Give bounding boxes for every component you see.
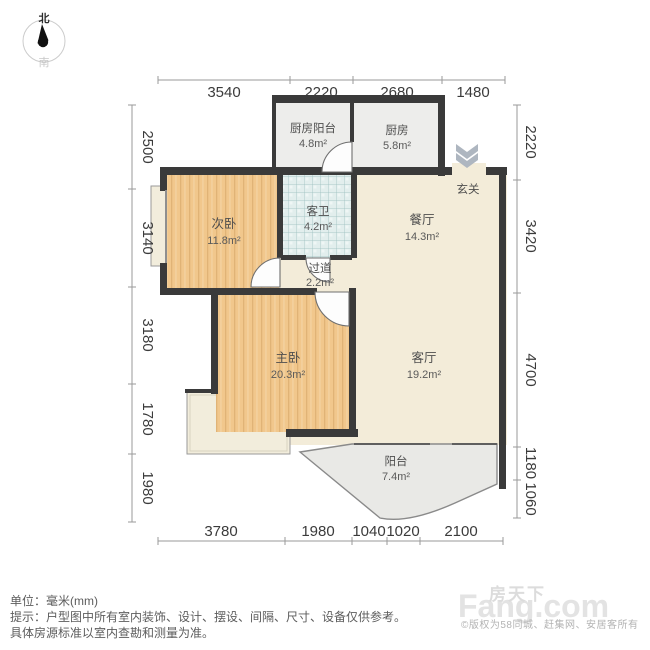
room-area-second-bedroom: 11.8m² [207,235,241,247]
note-tip-line1: 提示：户型图中所有室内装饰、设计、摆设、间隔、尺寸、设备仅供参考。 [10,609,406,625]
room-area-corridor: 2.2m² [306,277,334,289]
kitchen-strip-floor [272,95,444,176]
wall-kitchen-divider [350,95,354,142]
watermark-logo-cn: 房天下 [489,580,546,605]
wall-main-top [160,167,452,175]
wall-master-right [349,288,356,437]
wall-bathroom-left [277,172,283,258]
compass-north-label: 北 [39,11,50,25]
room-area-dining: 14.3m² [405,231,440,243]
footnotes: 单位：毫米(mm) 提示：户型图中所有室内装饰、设计、摆设、间隔、尺寸、设备仅供… [10,593,406,641]
room-label-corridor: 过道 [309,261,332,275]
room-area-kitchen: 5.8m² [383,140,411,152]
room-area-balcony: 7.4m² [382,471,410,483]
wall-master-left [211,288,218,394]
note-tip-line2: 具体房源标准以室内查勘和测量为准。 [10,625,406,641]
wall-bathroom-bottom-left [281,255,306,260]
room-label-master-bedroom: 主卧 [275,351,300,365]
wall-right [499,167,506,489]
dim-right-2: 3420 [522,219,539,252]
room-area-bathroom: 4.2m² [304,221,332,233]
wall-left-upper [160,167,167,191]
dim-left-5: 1980 [139,471,156,504]
room-label-balcony: 阳台 [385,454,408,468]
dim-bottom-4: 1020 [386,523,419,540]
wall-kitchen-balcony-left [272,95,276,172]
compass-icon: 北 南 [23,11,65,69]
room-label-dining: 餐厅 [409,212,434,227]
floorplan-canvas: 厨房阳台 4.8m² 厨房 5.8m² 玄关 次卧 11.8m² 客卫 4.2m… [0,0,650,650]
dim-right-3: 4700 [522,353,539,386]
wall-bay-stub [185,389,213,393]
room-area-master-bedroom: 20.3m² [271,369,306,381]
compass-hub [38,37,48,47]
wall-kitchen-right [438,95,445,176]
dim-left-2: 3140 [139,221,156,254]
room-label-second-bedroom: 次卧 [211,217,236,231]
wall-kitchen-top [272,95,444,103]
note-unit: 单位：毫米(mm) [10,593,406,609]
room-label-kitchen-balcony: 厨房阳台 [290,121,336,135]
dim-left-3: 3180 [139,318,156,351]
compass-south-label: 南 [39,56,50,69]
watermark-copyright: ©版权为58同城、赶集网、安居客所有 [461,616,639,631]
wall-bedrooms-horizontal [160,288,317,295]
room-label-entry: 玄关 [457,182,480,196]
dim-top-3: 2680 [380,84,413,101]
room-label-kitchen: 厨房 [386,124,409,137]
dim-right-1: 2220 [522,125,539,158]
room-label-living: 客厅 [411,350,436,365]
dim-bottom-5: 2100 [444,523,477,540]
room-area-living: 19.2m² [407,369,442,381]
wall-master-bottom [286,429,358,437]
dim-bottom-3: 1040 [352,523,385,540]
dim-right-4: 1180 [522,447,539,479]
room-area-kitchen-balcony: 4.8m² [299,138,327,150]
wall-bathroom-right [351,172,357,258]
floorplan-page: 厨房阳台 4.8m² 厨房 5.8m² 玄关 次卧 11.8m² 客卫 4.2m… [0,0,650,650]
room-label-bathroom: 客卫 [307,204,330,218]
dim-top-1: 3540 [207,84,240,101]
dim-left-1: 2500 [139,130,156,163]
dim-left-4: 1780 [139,402,156,435]
dim-top-2: 2220 [304,84,337,101]
dim-right-5: 1060 [522,482,539,515]
dim-top-4: 1480 [456,84,489,101]
wall-bathroom-bottom-right [330,255,352,260]
dim-bottom-2: 1980 [301,523,334,540]
dim-bottom-1: 3780 [204,523,237,540]
